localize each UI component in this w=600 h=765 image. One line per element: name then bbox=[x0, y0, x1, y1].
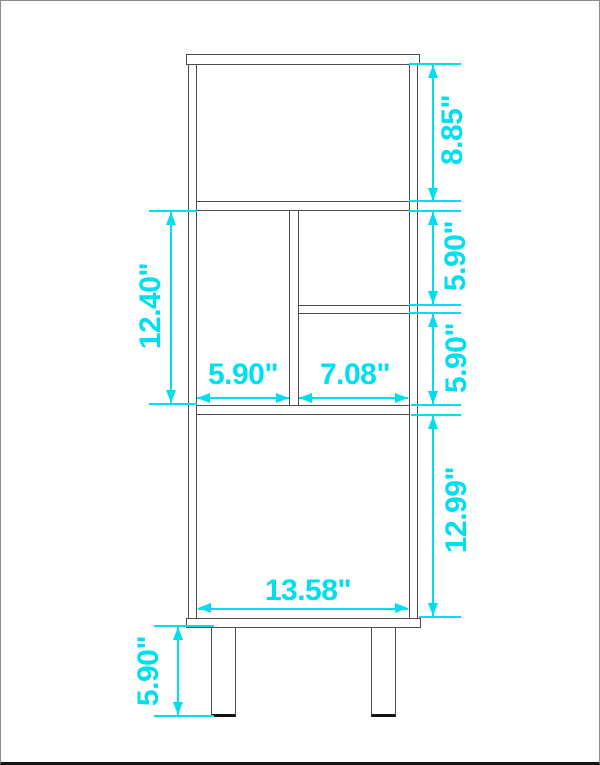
arrowhead bbox=[395, 393, 408, 403]
dim-label-right-lower-cubby-height: 5.90" bbox=[442, 323, 472, 393]
extension-line bbox=[149, 403, 197, 405]
top-shelf bbox=[196, 201, 410, 211]
arrowhead bbox=[276, 393, 289, 403]
dim-line-middle-section bbox=[170, 212, 172, 403]
arrowhead bbox=[428, 314, 438, 327]
dim-line-right-cubby-width bbox=[299, 397, 408, 399]
dim-label-left-cubby-width: 5.90" bbox=[208, 360, 278, 390]
arrowhead bbox=[428, 188, 438, 201]
arrowhead bbox=[428, 212, 438, 225]
arrowhead bbox=[166, 390, 176, 403]
arrowhead bbox=[173, 702, 183, 715]
arrowhead bbox=[166, 212, 176, 225]
dim-label-leg-height: 5.90" bbox=[134, 636, 164, 706]
extension-line bbox=[411, 404, 461, 406]
extension-line bbox=[409, 304, 461, 306]
right-leg bbox=[371, 627, 396, 717]
extension-line bbox=[419, 616, 461, 618]
extension-line bbox=[154, 625, 214, 627]
dim-line-interior-width bbox=[198, 608, 408, 610]
arrowhead bbox=[173, 627, 183, 640]
right-middle-shelf bbox=[298, 305, 410, 314]
dimension-diagram: 8.85" 5.90" 5.90" 12.99" 12.40" 5.90" 5.… bbox=[0, 0, 600, 765]
dim-label-top-section-height: 8.85" bbox=[438, 95, 468, 165]
arrowhead bbox=[428, 65, 438, 78]
dim-label-middle-section-height: 12.40" bbox=[136, 263, 166, 349]
dim-line-bottom-section bbox=[432, 416, 434, 616]
left-side-panel bbox=[188, 64, 197, 619]
dim-label-interior-width: 13.58" bbox=[265, 576, 351, 606]
left-leg bbox=[211, 627, 236, 717]
arrowhead bbox=[198, 603, 211, 613]
arrowhead bbox=[428, 416, 438, 429]
extension-line bbox=[154, 715, 214, 717]
arrowhead bbox=[428, 391, 438, 404]
arrowhead bbox=[428, 291, 438, 304]
arrowhead bbox=[197, 393, 210, 403]
dim-label-right-upper-cubby-height: 5.90" bbox=[441, 221, 471, 291]
right-side-panel bbox=[409, 64, 418, 619]
bottom-shelf bbox=[196, 405, 410, 415]
dim-line-top-section bbox=[432, 65, 434, 201]
dim-label-bottom-section-height: 12.99" bbox=[442, 467, 472, 553]
arrowhead bbox=[395, 603, 408, 613]
top-panel bbox=[186, 54, 420, 65]
arrowhead bbox=[299, 393, 312, 403]
dim-label-right-cubby-width: 7.08" bbox=[320, 360, 390, 390]
arrowhead bbox=[428, 603, 438, 616]
